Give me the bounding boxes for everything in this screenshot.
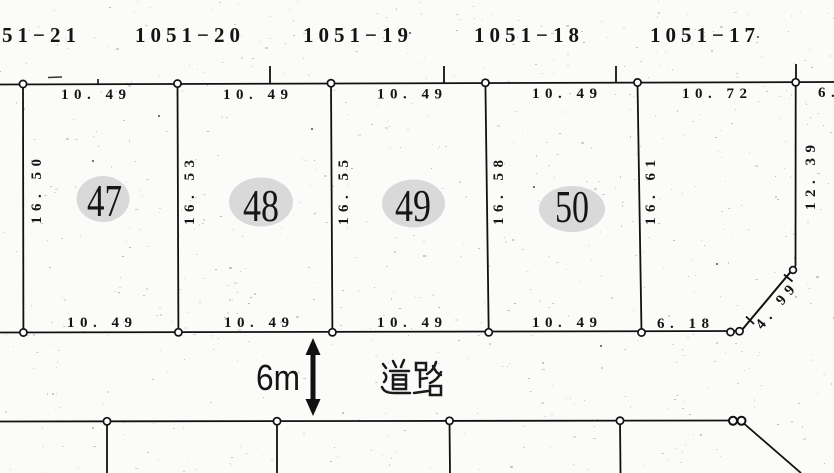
svg-text:10. 49: 10. 49 (532, 315, 603, 331)
svg-text:6. 18: 6. 18 (657, 316, 715, 332)
svg-text:10. 49: 10. 49 (61, 87, 132, 103)
svg-text:1051−20: 1051−20 (135, 23, 245, 47)
svg-text:10. 49: 10. 49 (377, 87, 448, 103)
svg-text:16. 61: 16. 61 (643, 155, 659, 226)
svg-text:6m: 6m (256, 357, 300, 398)
svg-text:49: 49 (395, 180, 431, 231)
svg-text:48: 48 (243, 180, 279, 231)
svg-text:1051−19: 1051−19 (303, 23, 413, 47)
svg-text:10. 49: 10. 49 (532, 86, 603, 102)
svg-text:10. 72: 10. 72 (682, 86, 753, 102)
svg-text:10. 49: 10. 49 (223, 87, 294, 103)
svg-text:10. 49: 10. 49 (67, 315, 138, 331)
svg-text:47: 47 (87, 175, 122, 226)
svg-text:16. 55: 16. 55 (336, 155, 352, 226)
svg-text:16. 50: 16. 50 (29, 154, 45, 225)
svg-text:16. 58: 16. 58 (491, 155, 507, 226)
svg-text:12. 39: 12. 39 (803, 140, 819, 211)
svg-text:6.: 6. (818, 85, 834, 101)
svg-text:10. 49: 10. 49 (224, 315, 295, 331)
svg-text:50: 50 (555, 181, 589, 232)
svg-text:10. 49: 10. 49 (377, 315, 448, 331)
svg-text:1051−17: 1051−17 (650, 23, 760, 47)
svg-text:1051−18: 1051−18 (474, 23, 584, 47)
svg-text:16. 53: 16. 53 (182, 155, 198, 226)
svg-text:1051−21: 1051−21 (0, 23, 81, 47)
